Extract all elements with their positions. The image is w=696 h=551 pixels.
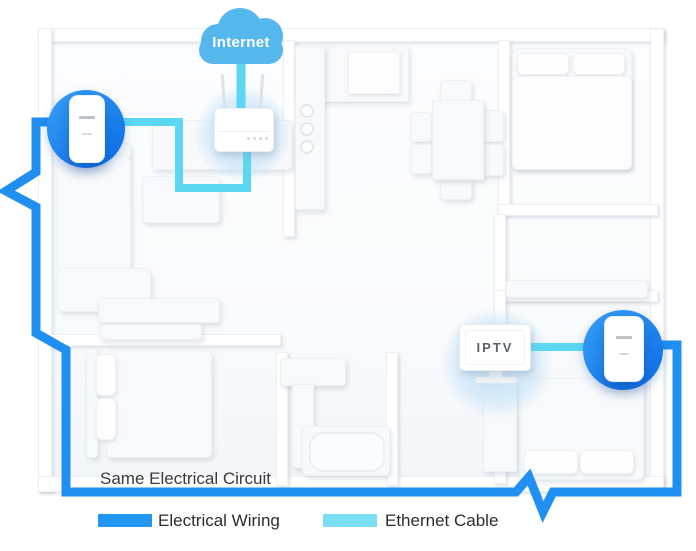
iptv-screen: IPTV [465, 330, 525, 365]
adapter-logo [616, 336, 632, 339]
router-led [259, 137, 262, 140]
wall-bedroom-tr-bottom [498, 204, 658, 216]
router-body [214, 108, 274, 152]
wall-outer-left [38, 28, 52, 492]
dining-chair [482, 144, 504, 176]
powerline-adapter-icon [604, 316, 644, 382]
tv-console [98, 298, 220, 323]
ethernet-cable-swatch [323, 514, 377, 527]
adapter-slot [82, 133, 92, 135]
dining-chair [440, 80, 472, 102]
pillow [517, 53, 569, 75]
stove-burner [300, 104, 314, 118]
pillow [573, 53, 625, 75]
router-antenna-icon [221, 74, 227, 110]
blanket [512, 76, 632, 170]
powerline-adapter-icon [69, 95, 105, 163]
stove-burner [300, 140, 314, 154]
internet-cloud-icon: Internet [199, 8, 283, 64]
iptv-stand-base [475, 377, 517, 383]
dining-chair [410, 144, 432, 174]
internet-label: Internet [199, 34, 283, 51]
wifi-router-icon [214, 74, 272, 152]
pillow [524, 450, 578, 474]
stove-burner [300, 122, 314, 136]
powerline-adapter-circle-right [583, 310, 663, 390]
shelf-bedroom-br [506, 280, 648, 298]
dining-chair [440, 178, 472, 200]
sofa [57, 155, 131, 272]
bathtub-basin [309, 432, 385, 472]
router-led [253, 137, 256, 140]
pillow [96, 354, 116, 396]
electrical-wiring-swatch [98, 514, 152, 527]
wall-hall-right [494, 214, 506, 300]
wall-outer-top [38, 28, 664, 42]
dining-table [432, 100, 484, 180]
dining-chair [482, 110, 504, 142]
coffee-table [142, 176, 220, 223]
dining-chair [410, 112, 432, 142]
iptv-television-icon: IPTV [459, 324, 531, 371]
iptv-label: IPTV [477, 340, 514, 355]
adapter-slot [619, 353, 629, 355]
pillow [580, 450, 634, 474]
kitchen-sink [348, 52, 400, 94]
pillow [96, 398, 116, 440]
wall-outer-right [650, 28, 664, 492]
shelf-bedroom-bl [100, 324, 202, 340]
router-antenna-icon [259, 74, 265, 110]
legend: Electrical Wiring Ethernet Cable [0, 511, 696, 541]
same-electrical-circuit-label: Same Electrical Circuit [100, 469, 271, 489]
powerline-adapter-circle-left [47, 90, 125, 168]
router-led [247, 137, 250, 140]
bed-bottom-left [106, 350, 212, 458]
electrical-wiring-legend-label: Electrical Wiring [158, 511, 280, 531]
router-led [265, 137, 268, 140]
ethernet-cable-legend-label: Ethernet Cable [385, 511, 498, 531]
washbasin [280, 358, 346, 386]
adapter-logo [79, 116, 95, 119]
